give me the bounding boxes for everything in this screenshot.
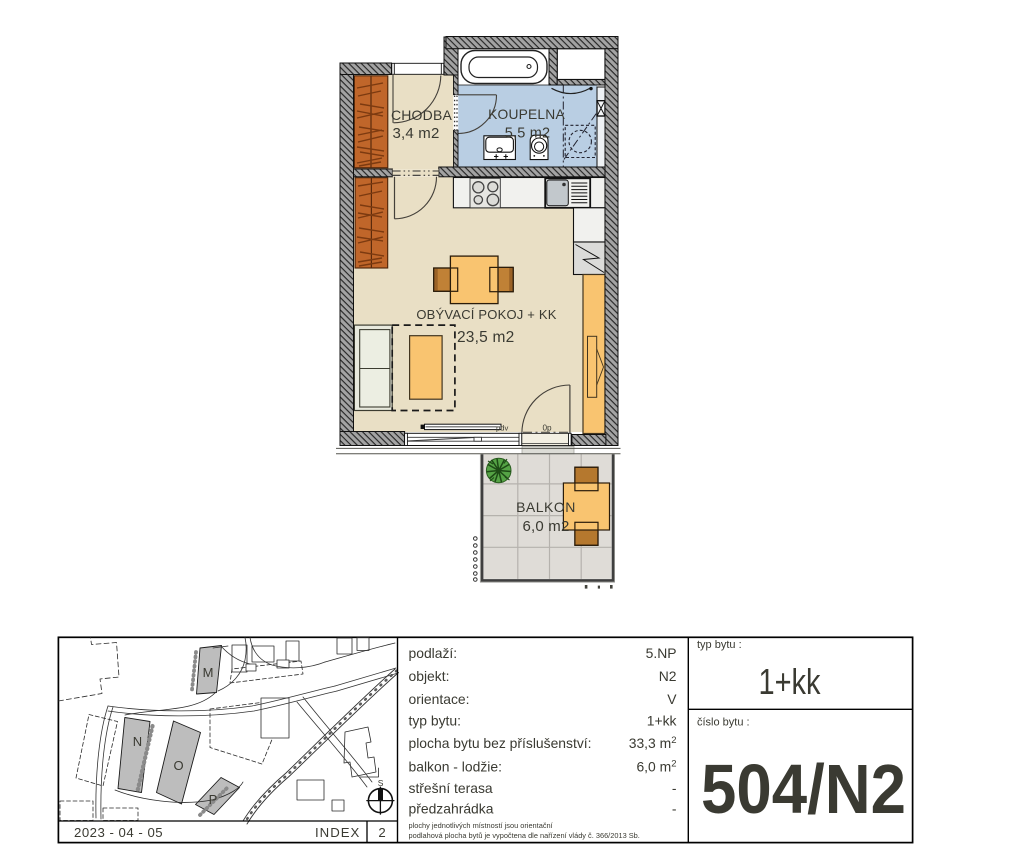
svg-text:0p: 0p [543,423,553,432]
svg-text:N: N [133,734,142,749]
svg-text:23,5 m2: 23,5 m2 [457,329,514,346]
svg-text:1+kk: 1+kk [647,713,677,729]
svg-text:objekt:: objekt: [409,668,450,684]
svg-text:podlaží:: podlaží: [409,645,458,661]
svg-text:N2: N2 [659,668,677,684]
svg-text:5.NP: 5.NP [646,645,677,661]
svg-text:KOUPELNA: KOUPELNA [488,107,565,122]
svg-text:1+kk: 1+kk [759,661,822,702]
svg-text:-: - [672,801,677,817]
svg-text:OBÝVACÍ POKOJ + KK: OBÝVACÍ POKOJ + KK [416,307,556,322]
svg-text:2023 - 04 - 05: 2023 - 04 - 05 [74,825,163,840]
svg-text:číslo bytu :: číslo bytu : [697,717,750,729]
svg-text:S: S [378,778,384,788]
svg-text:typ bytu:: typ bytu: [409,713,462,729]
svg-text:orientace:: orientace: [409,691,470,707]
svg-text:střešní terasa: střešní terasa [409,780,493,796]
svg-text:6,0 m2: 6,0 m2 [636,758,676,774]
svg-text:P: P [209,792,218,807]
svg-text:balkon - lodžie:: balkon - lodžie: [409,758,502,774]
svg-text:-: - [672,780,677,796]
svg-text:plochy jednotlivých místností: plochy jednotlivých místností jsou orien… [409,821,554,830]
svg-text:CHODBA: CHODBA [391,107,453,123]
svg-text:podlahová plocha bytů je vypoč: podlahová plocha bytů je vypočtena dle n… [409,831,640,840]
svg-text:M: M [203,665,214,680]
svg-text:3,4 m2: 3,4 m2 [392,125,439,142]
svg-text:V: V [667,691,677,707]
svg-text:5,5 m2: 5,5 m2 [505,126,551,142]
svg-text:6,0 m2: 6,0 m2 [522,518,569,535]
svg-text:pdv: pdv [496,424,508,433]
svg-text:typ bytu :: typ bytu : [697,639,742,651]
svg-text:504/N2: 504/N2 [701,750,906,828]
svg-text:O: O [173,758,183,773]
svg-text:33,3 m2: 33,3 m2 [629,735,677,751]
svg-text:2: 2 [378,825,385,840]
svg-text:INDEX: INDEX [315,825,360,840]
svg-text:předzahrádka: předzahrádka [409,801,494,817]
svg-text:plocha bytu bez příslušenství:: plocha bytu bez příslušenství: [409,735,592,751]
svg-text:BALKON: BALKON [516,499,576,515]
